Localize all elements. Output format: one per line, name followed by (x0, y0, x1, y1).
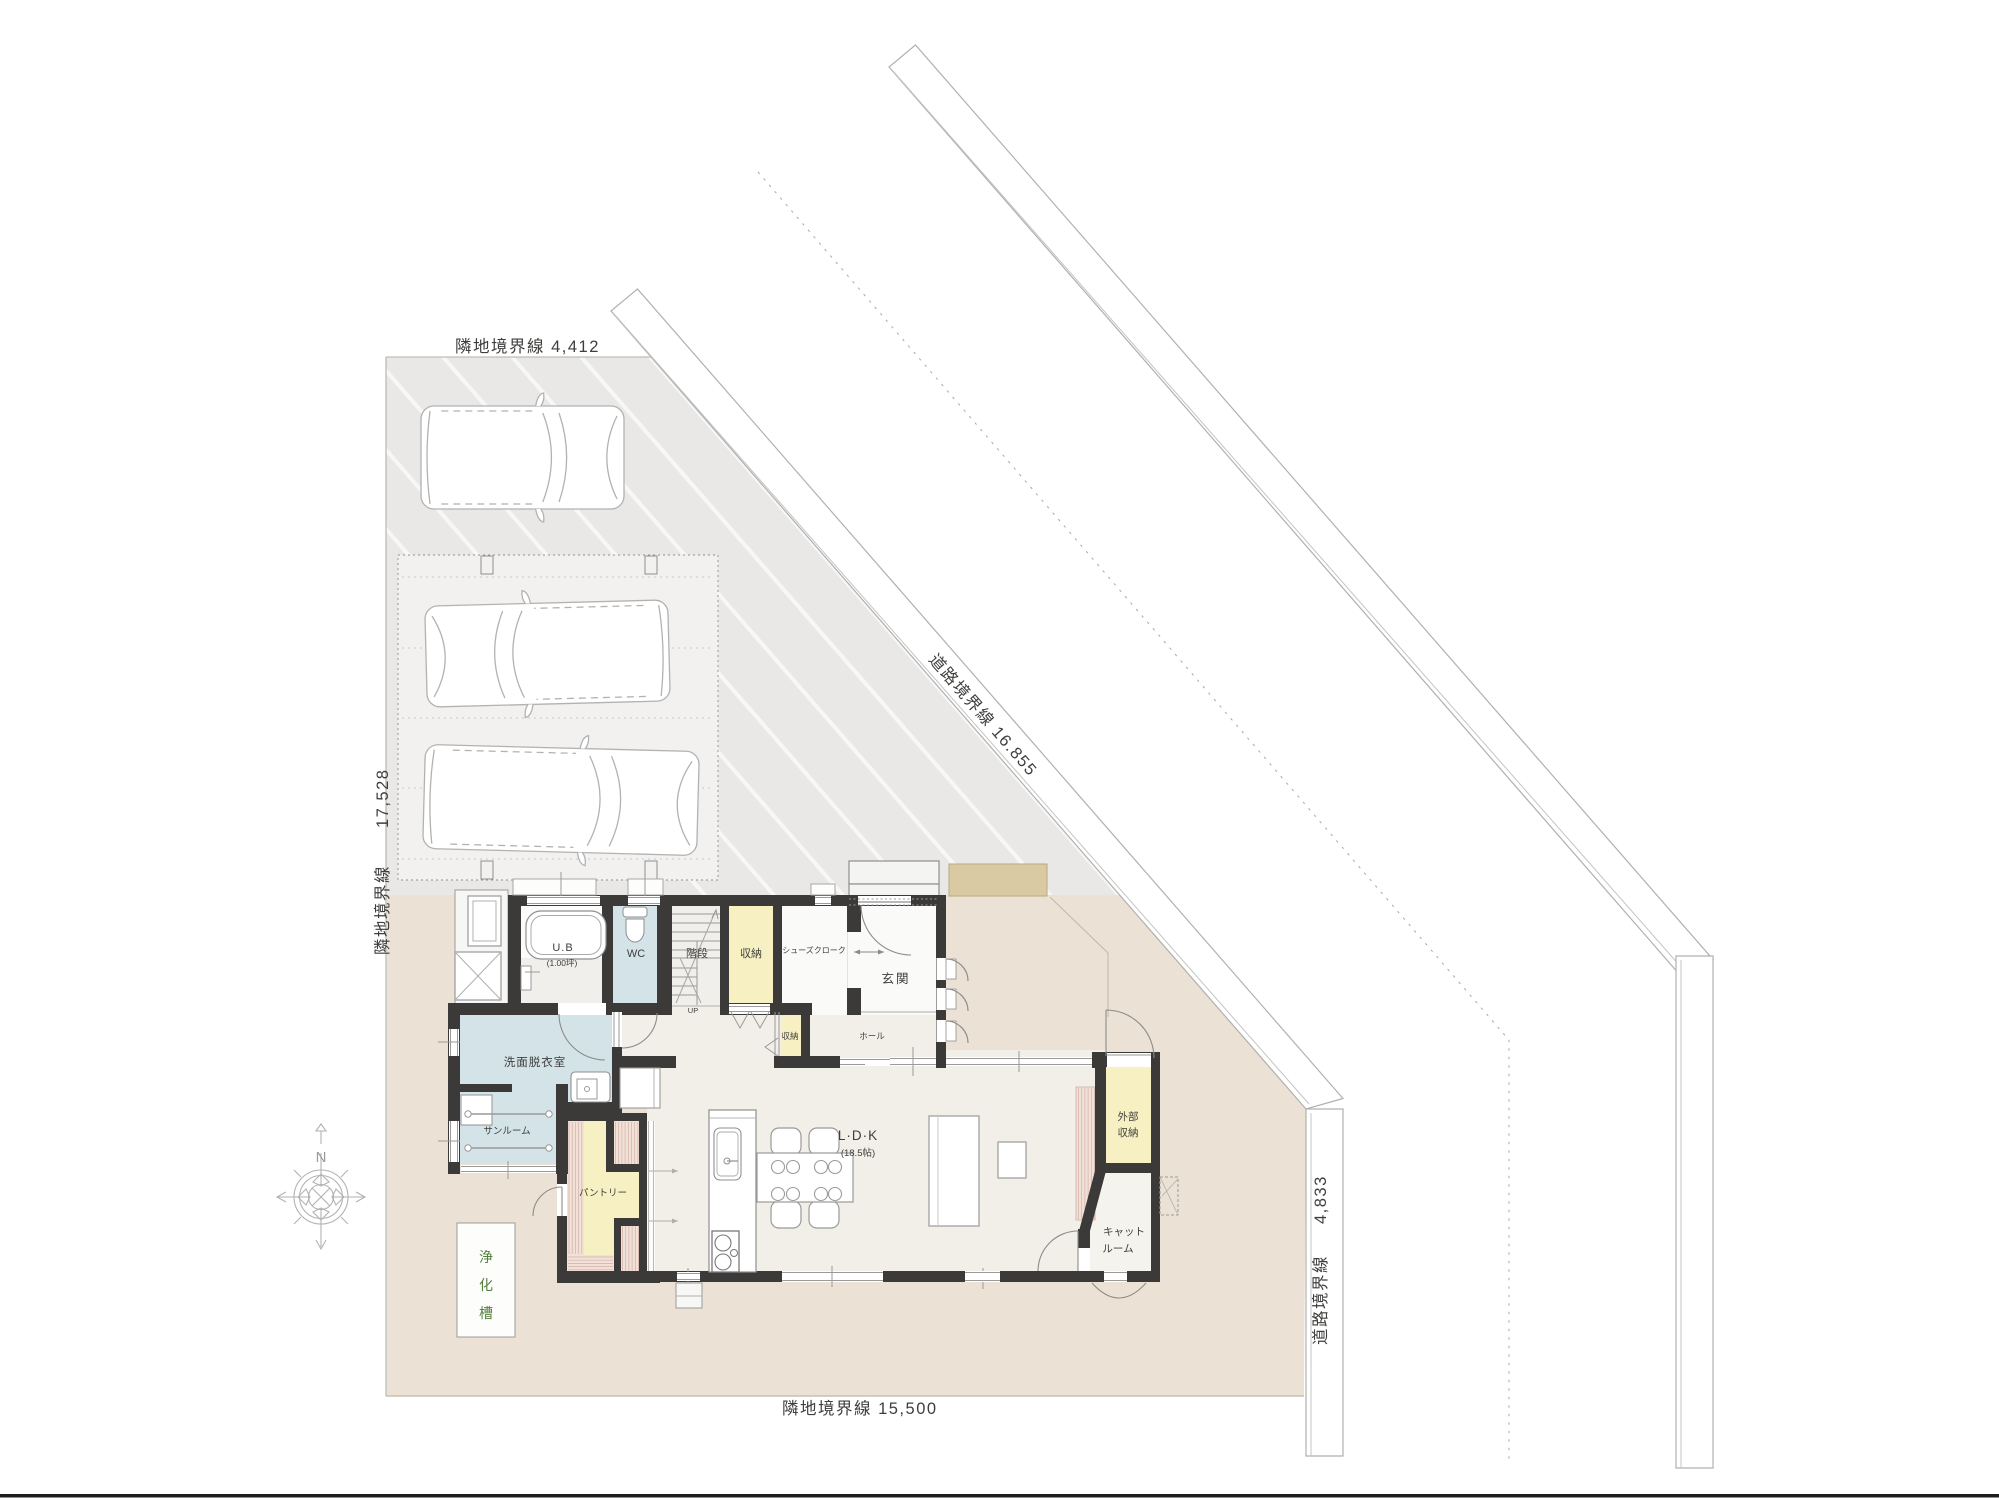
svg-text:化: 化 (479, 1277, 493, 1293)
svg-text:槽: 槽 (479, 1305, 493, 1321)
svg-text:キャット: キャット (1103, 1226, 1145, 1238)
svg-text:ホール: ホール (859, 1031, 885, 1041)
svg-text:サンルーム: サンルーム (483, 1126, 530, 1137)
svg-text:外部: 外部 (1118, 1110, 1139, 1123)
svg-text:隣地境界線: 隣地境界線 (373, 865, 392, 955)
svg-text:4,833: 4,833 (1312, 1175, 1330, 1224)
svg-text:ルーム: ルーム (1102, 1243, 1133, 1255)
svg-text:玄関: 玄関 (881, 971, 910, 986)
svg-text:階段: 階段 (686, 946, 708, 960)
svg-text:UP: UP (688, 1006, 698, 1015)
svg-text:隣地境界線 4,412: 隣地境界線 4,412 (455, 337, 600, 356)
svg-text:WC: WC (627, 948, 645, 960)
svg-text:洗面脱衣室: 洗面脱衣室 (504, 1055, 567, 1069)
svg-text:収納: 収納 (781, 1031, 798, 1041)
svg-text:隣地境界線 15,500: 隣地境界線 15,500 (782, 1399, 938, 1418)
svg-text:(1.00坪): (1.00坪) (547, 958, 578, 968)
svg-text:L·D·K: L·D·K (838, 1128, 878, 1143)
svg-text:浄: 浄 (479, 1249, 493, 1265)
svg-text:道路境界線: 道路境界線 (1311, 1255, 1330, 1345)
svg-text:17,528: 17,528 (374, 769, 392, 828)
svg-text:U.B: U.B (552, 942, 573, 954)
svg-text:パントリー: パントリー (579, 1188, 627, 1199)
svg-text:N: N (316, 1149, 327, 1166)
svg-text:(18.5帖): (18.5帖) (841, 1147, 875, 1159)
svg-text:収納: 収納 (740, 947, 762, 960)
svg-text:収納: 収納 (1118, 1126, 1139, 1139)
svg-text:シューズクローク: シューズクローク (782, 945, 846, 955)
